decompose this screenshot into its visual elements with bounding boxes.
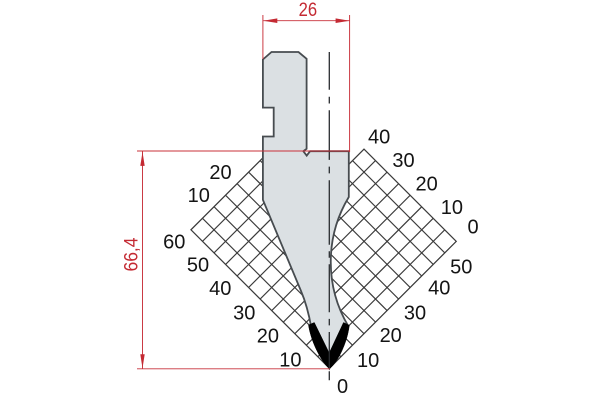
svg-text:40: 40 [209, 278, 231, 300]
svg-text:10: 10 [357, 350, 379, 372]
svg-text:0: 0 [337, 376, 348, 398]
svg-text:30: 30 [392, 150, 414, 172]
svg-text:10: 10 [188, 185, 210, 207]
svg-text:20: 20 [415, 173, 437, 195]
svg-text:30: 30 [404, 302, 426, 324]
svg-text:20: 20 [380, 325, 402, 347]
svg-text:40: 40 [368, 127, 390, 149]
svg-text:26: 26 [299, 0, 318, 21]
svg-text:10: 10 [279, 350, 301, 372]
svg-text:66,4: 66,4 [122, 237, 143, 271]
svg-text:50: 50 [187, 254, 209, 276]
svg-text:0: 0 [467, 217, 478, 239]
svg-text:10: 10 [441, 197, 463, 219]
svg-text:20: 20 [257, 326, 279, 348]
svg-text:50: 50 [450, 256, 472, 278]
svg-text:60: 60 [163, 232, 185, 254]
svg-text:20: 20 [209, 162, 231, 184]
svg-text:30: 30 [233, 302, 255, 324]
svg-text:40: 40 [428, 278, 450, 300]
